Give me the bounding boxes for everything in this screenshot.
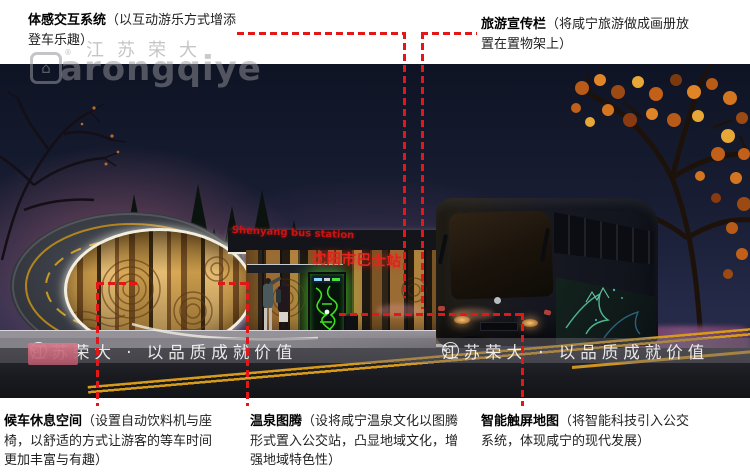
callout-title: 候车休息空间 — [4, 414, 82, 429]
leader-topright-horizontal — [421, 32, 477, 35]
bus-license-plate — [480, 322, 518, 331]
leader-topright-vertical — [421, 32, 424, 309]
watermark-band: ⌂®江苏荣大 · 以品质成就价值 ⌂®江苏荣大 · 以品质成就价值 — [0, 338, 750, 363]
bus-glow-livery — [556, 268, 656, 344]
leader-bottomleft-vertical — [96, 282, 99, 406]
bus — [436, 198, 658, 350]
callout-tourism-board: 旅游宣传栏（将咸宁旅游做成画册放置在置物架上） — [481, 15, 699, 54]
bus-logo — [494, 297, 501, 304]
bus-headlight-right — [522, 319, 538, 327]
leader-topleft-horizontal — [237, 32, 406, 35]
bus-windshield — [449, 210, 554, 300]
design-board: Shenyang bus station 沈阳市巴士站 — [0, 0, 750, 472]
watermark-banner-text: 江苏荣大 · 以品质成就价值 — [442, 339, 709, 363]
callout-title: 旅游宣传栏 — [481, 17, 546, 32]
callout-waiting-lounge: 候车休息空间（设置自动饮料机与座椅，以舒适的方式让游客的等车时间更加丰富与有趣） — [4, 412, 222, 471]
leader-bottomright-horizontal — [339, 313, 524, 316]
leader-bottomright-vertical — [521, 313, 524, 406]
callout-interactive-system: 体感交互系统（以互动游乐方式增添登车乐趣） — [28, 11, 246, 50]
bus-marker-light — [438, 306, 445, 311]
brand-house-icon: ⌂ — [30, 52, 62, 84]
station-render-photo: Shenyang bus station 沈阳市巴士站 — [0, 64, 750, 398]
callout-hotspring-totem: 温泉图腾（设将咸宁温泉文化以图腾形式置入公交站，凸显地域文化，增强地域特色性） — [250, 412, 468, 471]
leader-bottommiddle-horizontal — [218, 282, 249, 285]
pink-planter-sign — [28, 343, 78, 365]
callout-title: 体感交互系统 — [28, 13, 106, 28]
callout-title: 智能触屏地图 — [481, 414, 559, 429]
callout-smart-touch-map: 智能触屏地图（将智能科技引入公交系统，体现咸宁的现代发展） — [481, 412, 699, 451]
leader-bottomleft-horizontal — [97, 282, 138, 285]
watermark-brand-latin: arongqiye — [60, 49, 262, 89]
leader-bottommiddle-vertical — [246, 282, 249, 406]
callout-title: 温泉图腾 — [250, 414, 302, 429]
leader-topleft-vertical — [403, 32, 406, 298]
